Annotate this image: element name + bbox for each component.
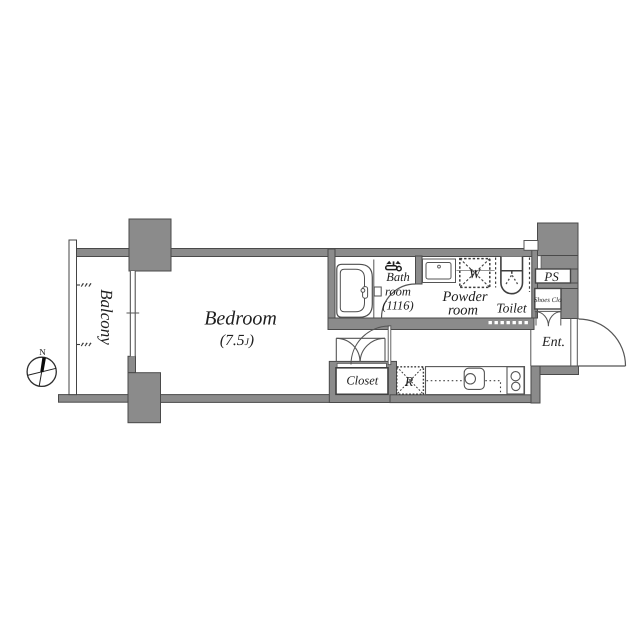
- svg-text:Ent.: Ent.: [541, 335, 565, 350]
- svg-text:W: W: [469, 266, 482, 281]
- svg-text:Shoes Clo: Shoes Clo: [534, 297, 562, 304]
- svg-text:(1116): (1116): [382, 299, 413, 313]
- svg-text:(7.5J): (7.5J): [220, 332, 254, 349]
- svg-text:Bedroom: Bedroom: [204, 308, 277, 330]
- svg-text:N: N: [39, 347, 46, 357]
- svg-text:Toilet: Toilet: [496, 301, 528, 316]
- svg-text:Bath: Bath: [386, 270, 410, 284]
- svg-text:PS: PS: [543, 269, 559, 284]
- svg-text:Balcony: Balcony: [97, 289, 116, 345]
- svg-text:room: room: [385, 285, 411, 299]
- svg-text:R: R: [404, 374, 414, 389]
- svg-text:room: room: [448, 302, 478, 318]
- svg-text:Closet: Closet: [346, 374, 378, 388]
